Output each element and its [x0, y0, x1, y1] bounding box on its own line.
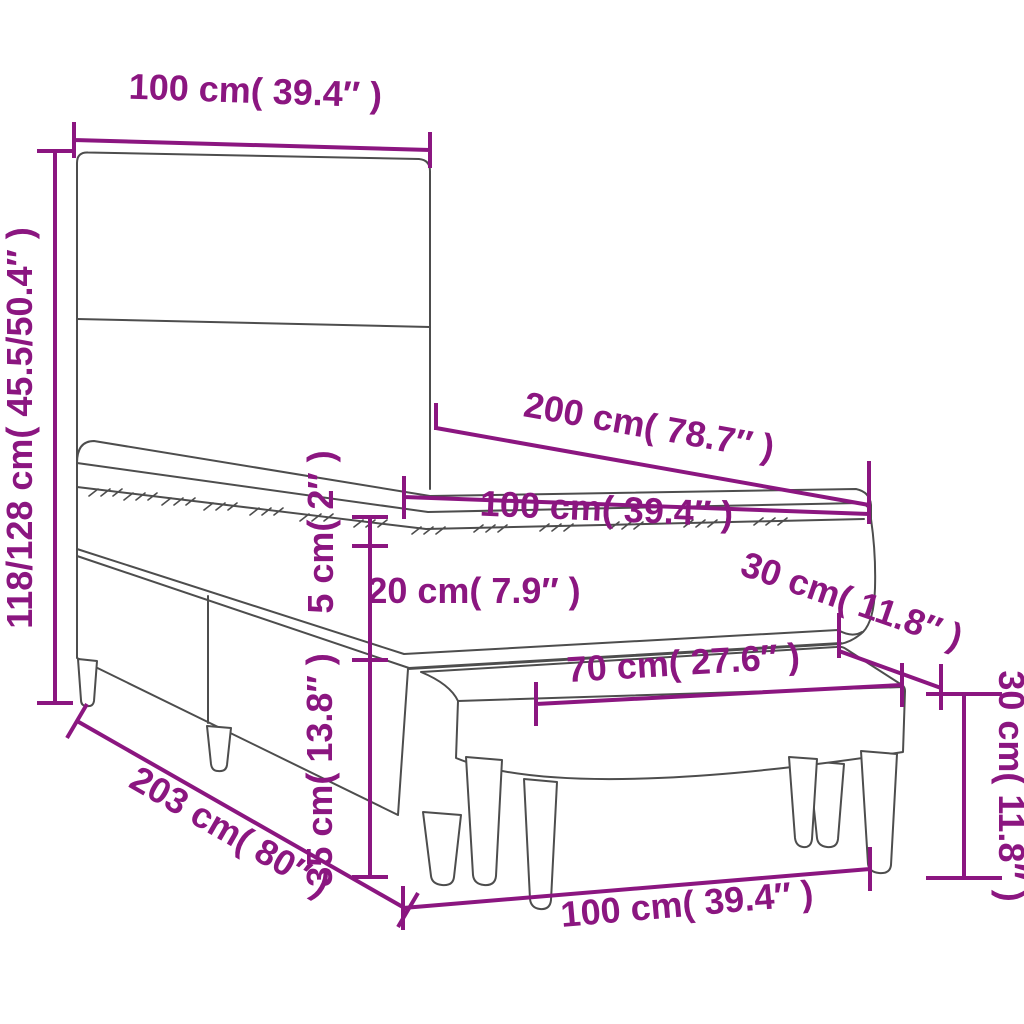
bed-leg	[207, 726, 231, 771]
diagram-canvas: 100 cm( 39.4″ ) 118/128 cm( 45.5/50.4″ )…	[0, 0, 1024, 1024]
bench-leg	[466, 757, 502, 885]
dim-topper-height-label: 5 cm( 2″ )	[300, 450, 341, 613]
dim-total-height-line	[37, 151, 73, 703]
dim-total-height-label: 118/128 cm( 45.5/50.4″ )	[0, 227, 40, 629]
bench-leg	[524, 779, 557, 909]
bed-leg	[423, 812, 461, 885]
bench-leg	[789, 757, 817, 847]
dim-bench-length-label: 100 cm( 39.4″ )	[559, 872, 815, 935]
dimension-diagram: 100 cm( 39.4″ ) 118/128 cm( 45.5/50.4″ )…	[0, 0, 1024, 1024]
dim-headboard-width-label: 100 cm( 39.4″ )	[128, 66, 383, 116]
bench-leg	[861, 751, 897, 873]
dim-mattress-height-label: 20 cm( 7.9″ )	[367, 570, 580, 611]
dim-bench-height-label: 30 cm( 11.8″ )	[991, 670, 1024, 901]
dim-total-height: 118/128 cm( 45.5/50.4″ )	[0, 151, 73, 703]
dim-mattress-length-label: 200 cm( 78.7″ )	[521, 384, 778, 468]
bed-leg	[78, 659, 97, 706]
dim-bench-height-line	[926, 694, 1002, 878]
